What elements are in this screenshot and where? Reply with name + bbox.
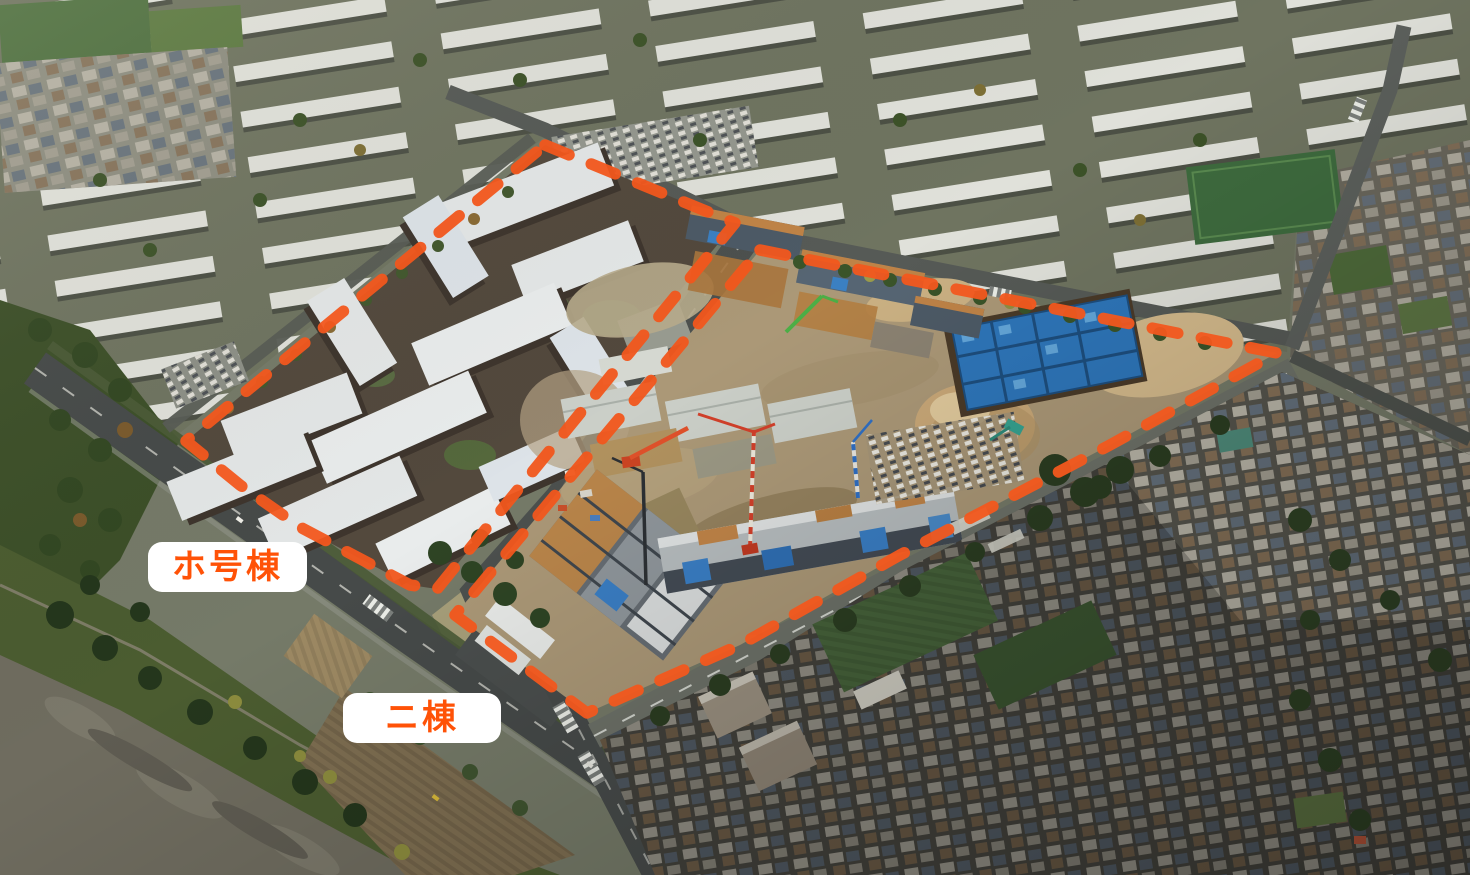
photo-lighting-overlay [0,0,1470,875]
label-ni-text: ニ棟 [385,701,459,735]
label-ho-text: ホ号棟 [172,550,283,584]
aerial-photo: ホ号棟 ニ棟 [0,0,1470,875]
label-ni-building: ニ棟 [343,693,501,743]
label-ho-building: ホ号棟 [148,542,307,592]
aerial-photo-canvas [0,0,1470,875]
